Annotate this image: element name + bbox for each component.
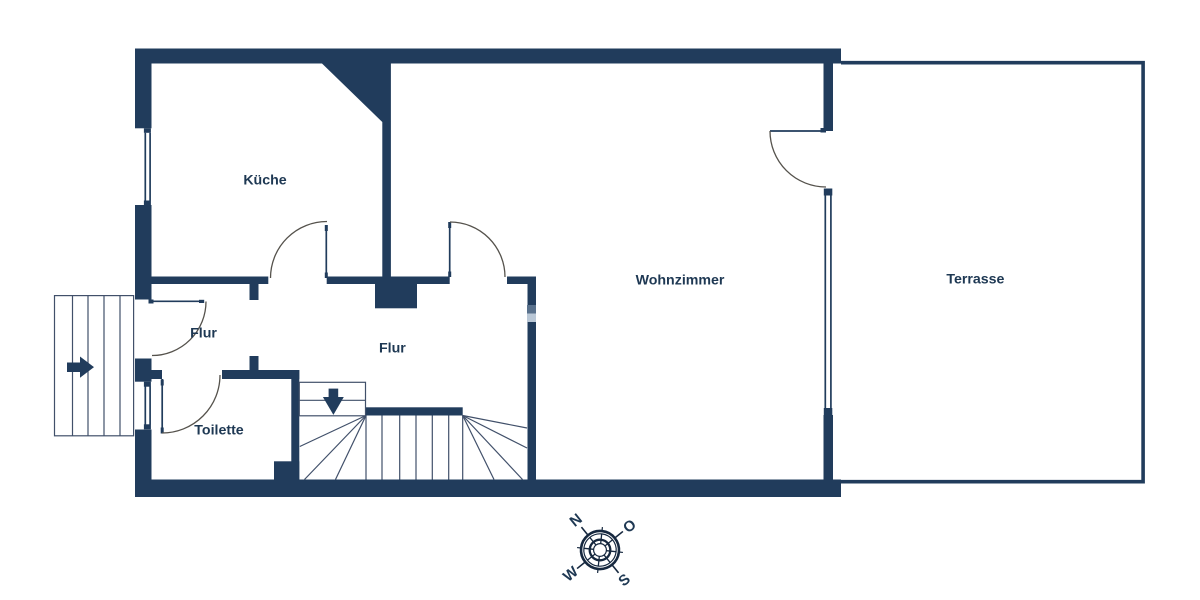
svg-text:Flur: Flur bbox=[190, 326, 217, 342]
svg-text:Terrasse: Terrasse bbox=[946, 272, 1004, 288]
svg-text:Wohnzimmer: Wohnzimmer bbox=[636, 273, 725, 289]
svg-text:Toilette: Toilette bbox=[194, 423, 244, 439]
svg-text:Flur: Flur bbox=[379, 341, 406, 357]
svg-text:Küche: Küche bbox=[243, 173, 286, 189]
